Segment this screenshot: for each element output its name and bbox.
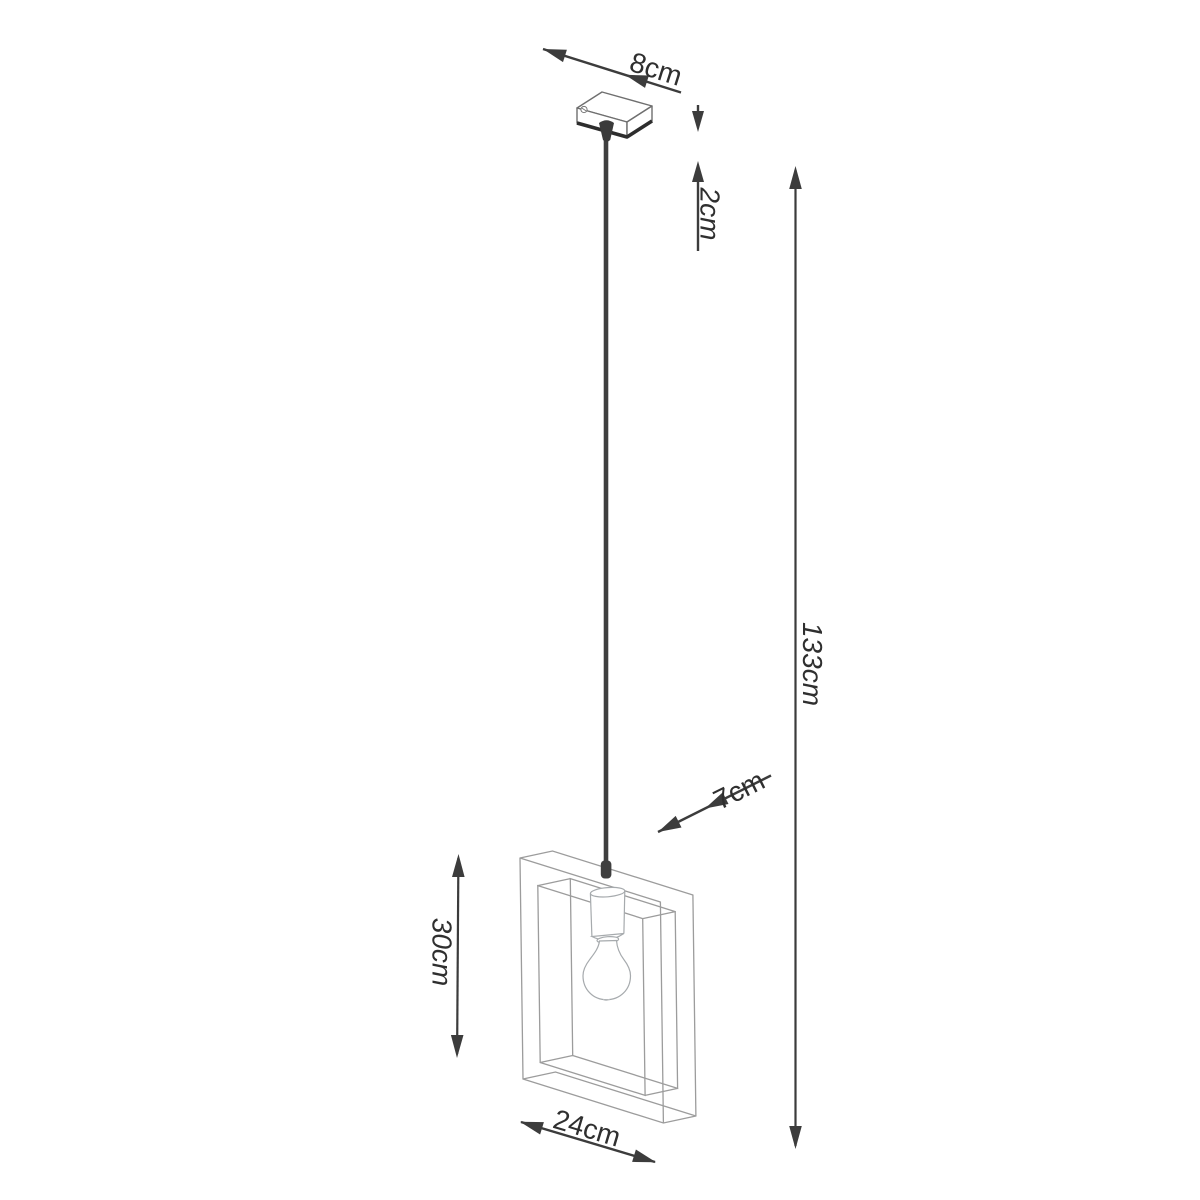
dim-2cm-label: 2cm — [695, 187, 726, 241]
dim-8cm-label: 8cm — [626, 46, 686, 91]
dim-7cm-label: 7cm — [708, 764, 769, 815]
dimension-total-drop: 133cm — [789, 166, 828, 1149]
dim-30cm-arrowhead-up — [452, 854, 465, 877]
bulb-socket — [590, 886, 625, 943]
dim-8cm-arrowhead-end — [543, 49, 567, 62]
dimension-shade-height: 30cm — [427, 854, 465, 1058]
dim-24cm-arrowhead-left — [520, 1122, 544, 1135]
dim-7cm-arrowhead-end — [658, 816, 682, 832]
dimension-canopy-height: 2cm — [692, 105, 726, 251]
dimension-diagram-page: 8cm 2cm 133cm 7cm 30cm 24cm — [0, 0, 1200, 1200]
cord-connector — [601, 861, 612, 879]
dim-24cm-arrowhead-right — [632, 1150, 656, 1163]
pendant-lamp-dimension-diagram: 8cm 2cm 133cm 7cm 30cm 24cm — [0, 0, 1200, 1200]
dimension-shade-depth: 7cm — [658, 764, 771, 832]
ceiling-canopy — [577, 92, 652, 142]
dim-30cm-label: 30cm — [427, 918, 458, 986]
dim-30cm-arrowhead-down — [451, 1035, 464, 1058]
dim-133cm-arrowhead-up — [789, 166, 802, 189]
dim-133cm-label: 133cm — [797, 622, 828, 706]
cord-grommet — [599, 120, 614, 142]
dimension-canopy-width: 8cm — [543, 46, 686, 92]
pendant-cord — [601, 140, 612, 879]
dim-2cm-arrowhead-up — [692, 161, 704, 182]
bulb-outline — [583, 941, 631, 1000]
dim-133cm-arrowhead-down — [789, 1126, 802, 1149]
dim-24cm-label: 24cm — [550, 1103, 624, 1152]
light-bulb — [583, 941, 631, 1001]
dim-2cm-arrowhead-down — [692, 111, 704, 132]
dimension-shade-width: 24cm — [520, 1103, 656, 1162]
socket-body — [590, 891, 624, 937]
